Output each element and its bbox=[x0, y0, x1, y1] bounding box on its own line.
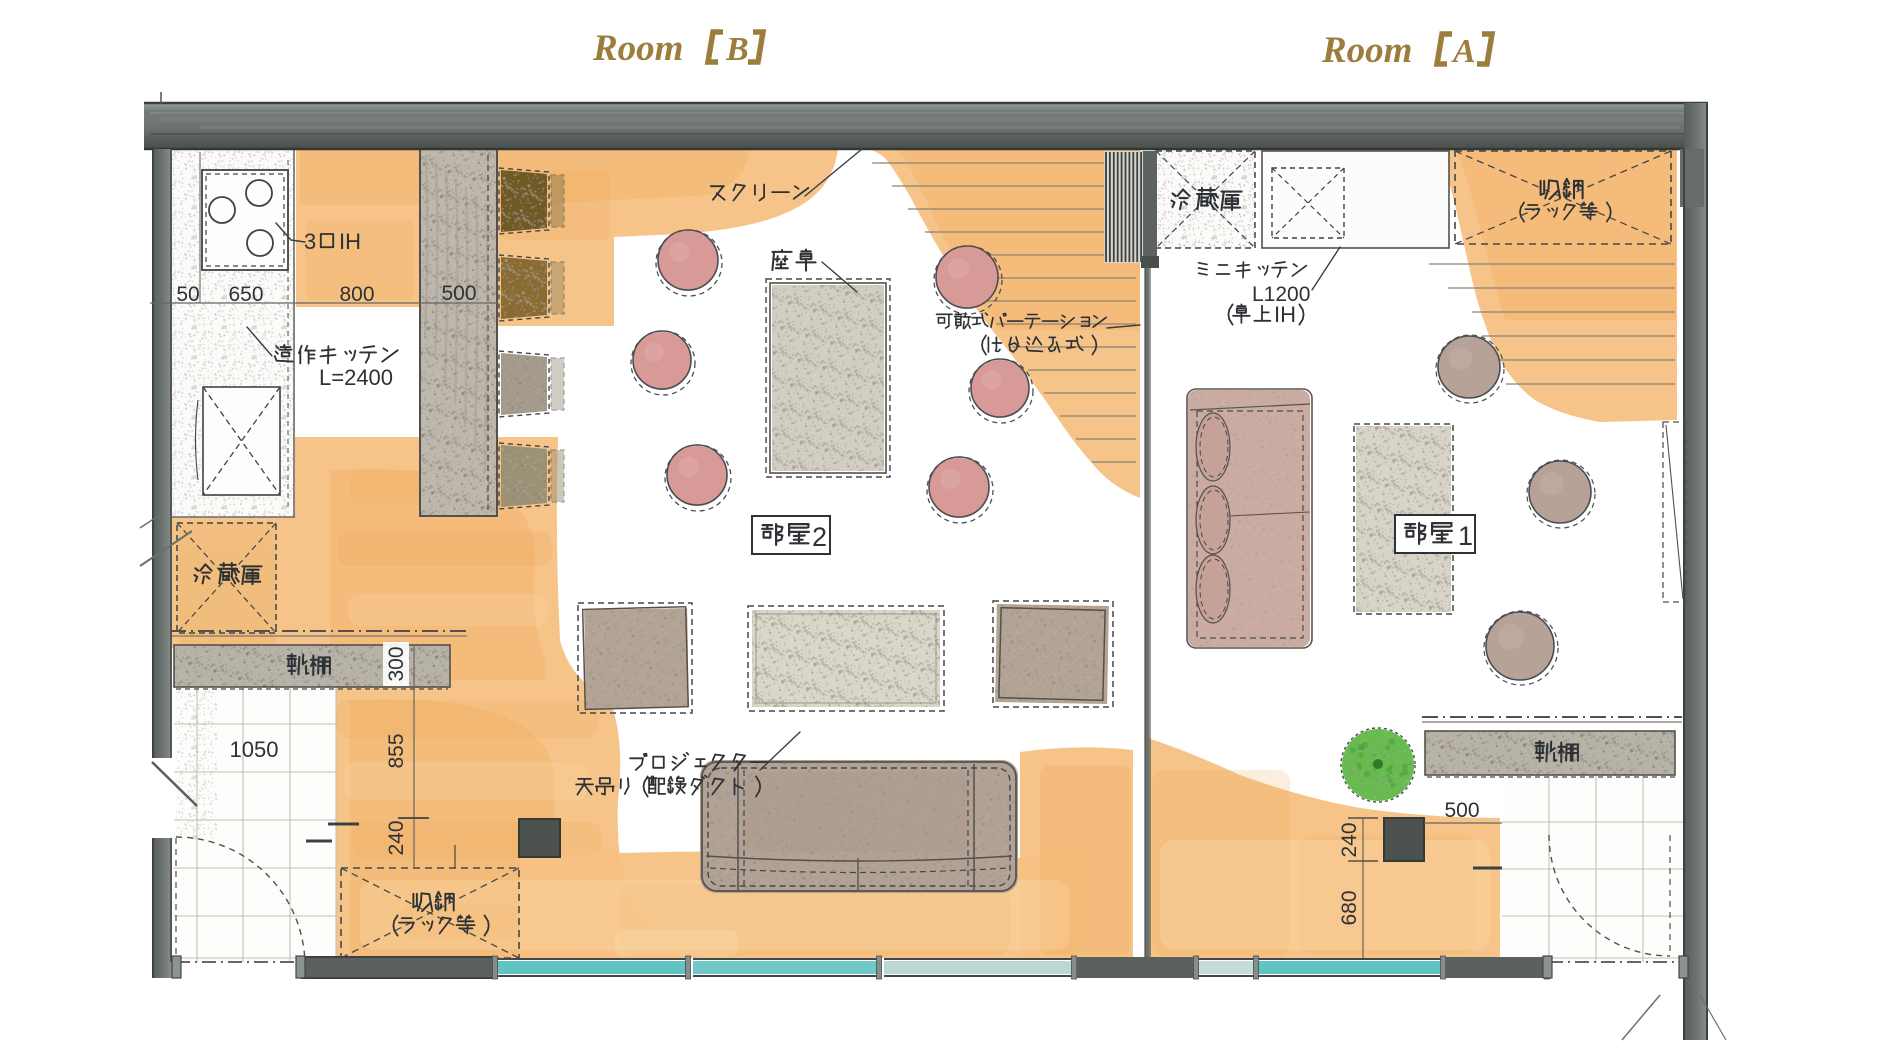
svg-text:500: 500 bbox=[1444, 799, 1479, 822]
svg-text:L=2400: L=2400 bbox=[319, 365, 393, 390]
svg-text:Room: Room bbox=[1321, 30, 1412, 71]
svg-text:2: 2 bbox=[812, 522, 827, 552]
svg-text:A: A bbox=[1451, 33, 1476, 70]
svg-text:B: B bbox=[725, 31, 749, 68]
svg-text:1050: 1050 bbox=[230, 737, 279, 762]
svg-text:855: 855 bbox=[385, 733, 408, 768]
svg-text:IH: IH bbox=[1274, 302, 1296, 327]
svg-text:50: 50 bbox=[176, 283, 199, 306]
svg-text:IH: IH bbox=[339, 229, 361, 254]
svg-text:650: 650 bbox=[228, 283, 263, 306]
svg-text:Room: Room bbox=[592, 28, 683, 69]
svg-text:3: 3 bbox=[304, 229, 316, 254]
svg-text:300: 300 bbox=[385, 646, 408, 681]
svg-text:680: 680 bbox=[1338, 890, 1361, 925]
svg-text:1: 1 bbox=[1458, 521, 1473, 551]
svg-text:240: 240 bbox=[1338, 822, 1361, 857]
svg-text:240: 240 bbox=[385, 820, 408, 855]
svg-text:800: 800 bbox=[339, 283, 374, 306]
svg-text:500: 500 bbox=[441, 282, 476, 305]
